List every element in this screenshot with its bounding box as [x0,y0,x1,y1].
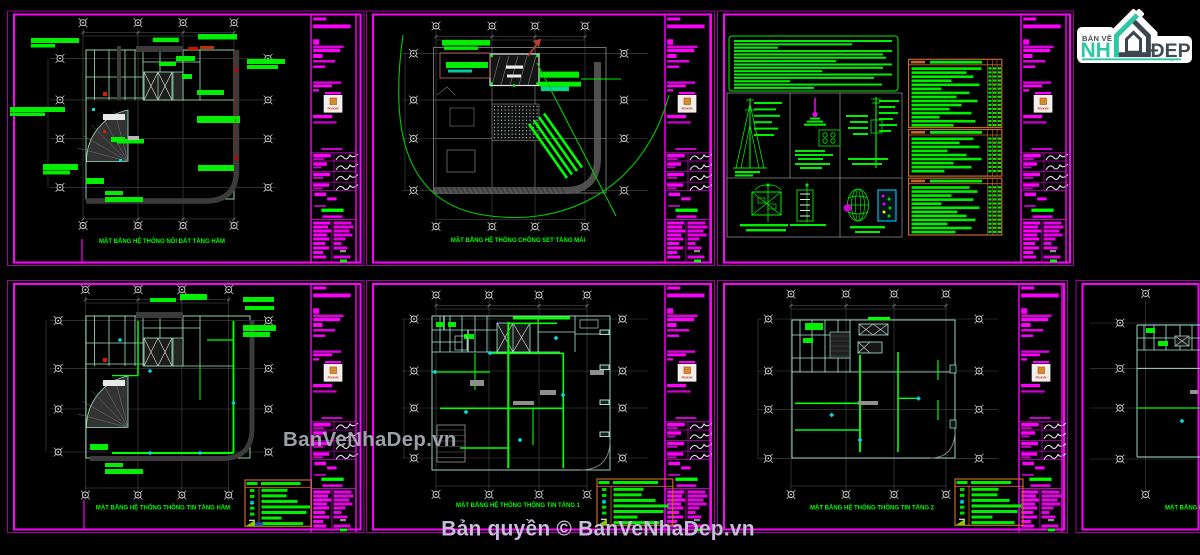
svg-text:MẶT BẰNG HỆ THỐNG NỒI ĐẤT TẦNG: MẶT BẰNG HỆ THỐNG NỒI ĐẤT TẦNG HẦM [99,237,225,245]
svg-text:✱: ✱ [601,499,606,506]
svg-text:Bản quyền © BanVeNhaDep.vn: Bản quyền © BanVeNhaDep.vn [441,518,755,541]
svg-text:PEAKVN: PEAKVN [328,376,339,380]
svg-text:BanVeNhaDep.vn: BanVeNhaDep.vn [283,429,457,451]
svg-text:MẶT BẰNG HỆ THỐNG THÔNG TIN TẦ: MẶT BẰNG HỆ THỐNG THÔNG TIN TẦNG HẦM [96,504,230,512]
svg-text:PEAKVN: PEAKVN [1036,376,1047,380]
svg-text:MẶT BẰNG HỆ THỐNG CHỒNG SET TẦ: MẶT BẰNG HỆ THỐNG CHỒNG SET TẦNG MÁI [451,236,586,244]
svg-text:PEAKVN: PEAKVN [1038,107,1049,111]
svg-text:PEAKVN: PEAKVN [328,107,339,111]
svg-text:MẶT BẰNG HỆ THỐNG THÔNG TIN TẦ: MẶT BẰNG HỆ THỐNG THÔNG TIN TẦNG 1 [456,501,581,509]
svg-text:MẶT BẰNG HỆ THỐNG THÔNG TIN TẦ: MẶT BẰNG HỆ THỐNG THÔNG TIN TẦNG 2 [810,504,935,512]
svg-text:✱: ✱ [959,499,964,506]
svg-text:PEAKVN: PEAKVN [682,376,693,380]
svg-text:PEAKVN: PEAKVN [682,107,693,111]
svg-text:MẶT BẰNG HỆ T: MẶT BẰNG HỆ T [1165,504,1200,512]
svg-text:✱: ✱ [249,500,254,507]
